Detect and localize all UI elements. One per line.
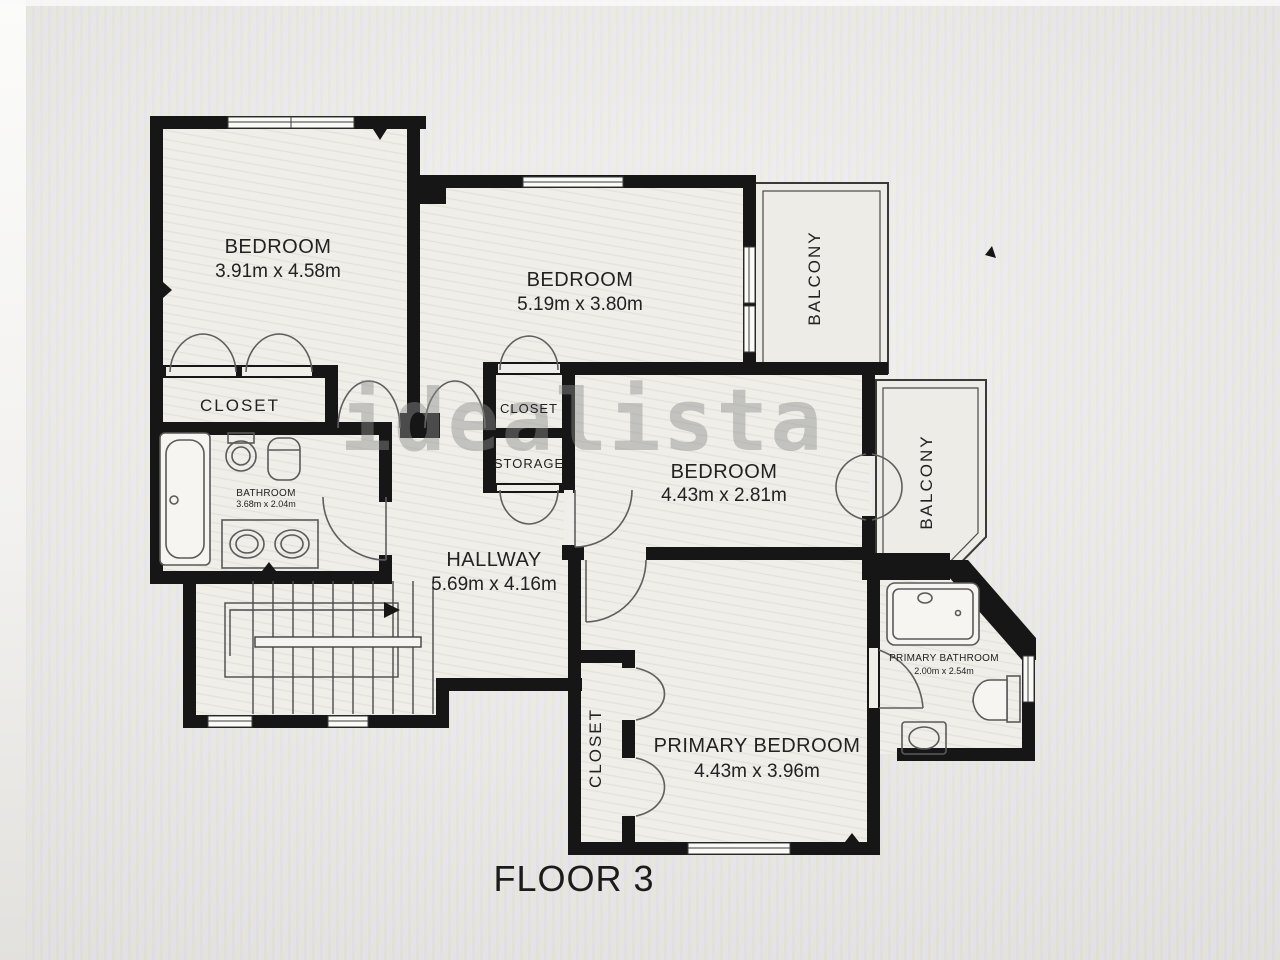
window [523, 177, 623, 187]
window [744, 306, 755, 352]
room-label-bathroom: BATHROOM [236, 488, 295, 499]
room-dims-hallway: 5.69m x 4.16m [431, 574, 557, 595]
room-label-closet-primary: CLOSET [586, 708, 605, 788]
room-dims-primary-bedroom: 4.43m x 3.96m [694, 761, 820, 782]
room-dims-bedroom1: 3.91m x 4.58m [215, 261, 341, 282]
room-label-balcony-top: BALCONY [805, 230, 824, 325]
stair-rail [255, 637, 421, 647]
room-label-closet1: CLOSET [200, 396, 280, 415]
room-label-storage: STORAGE [494, 456, 564, 471]
window [328, 716, 368, 727]
room-label-bedroom3: BEDROOM [671, 461, 778, 483]
room-label-closet-hall: CLOSET [500, 401, 558, 416]
room-dims-bedroom3: 4.43m x 2.81m [661, 485, 787, 506]
idealista-watermark: idealista [340, 371, 824, 471]
bathtub [160, 433, 210, 565]
room-label-primary-bathroom: PRIMARY BATHROOM [889, 653, 999, 664]
window [208, 716, 252, 727]
window [688, 843, 790, 854]
room-label-primary-bedroom: PRIMARY BEDROOM [654, 735, 861, 757]
window [228, 117, 354, 128]
room-label-bedroom1: BEDROOM [225, 236, 332, 258]
toilet [973, 680, 1007, 720]
floor-plan-canvas: idealista BEDROOM 3.91m x 4.58m BEDROOM … [0, 0, 1280, 960]
room-dims-bedroom2: 5.19m x 3.80m [517, 294, 643, 315]
room-label-hallway: HALLWAY [446, 549, 541, 571]
window [1023, 656, 1034, 702]
window [744, 247, 755, 303]
room-label-bedroom2: BEDROOM [527, 269, 634, 291]
room-dims-primary-bathroom: 2.00m x 2.54m [914, 666, 974, 676]
shower-tray [887, 583, 979, 645]
room-label-balcony-right: BALCONY [917, 434, 936, 529]
floor-title: FLOOR 3 [493, 858, 654, 899]
room-dims-bathroom: 3.68m x 2.04m [236, 499, 296, 509]
